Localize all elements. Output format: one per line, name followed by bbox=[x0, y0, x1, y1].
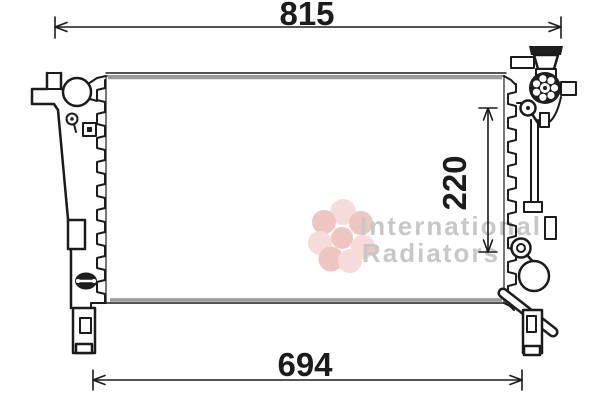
right-side-tab bbox=[561, 82, 576, 95]
keyhole-tail bbox=[74, 124, 76, 132]
keyhole-pin bbox=[70, 117, 74, 121]
upper-bracket-arm bbox=[32, 73, 71, 308]
filler-cap-top bbox=[529, 46, 563, 55]
watermark-line2: Radiators bbox=[362, 238, 500, 268]
dimension-top-width: 815 bbox=[55, 0, 561, 38]
clamp-dot-left bbox=[76, 279, 80, 283]
filler-cap-body bbox=[534, 55, 558, 69]
flower-petal bbox=[312, 210, 336, 234]
left-tank-top-step bbox=[88, 76, 106, 84]
flower-center bbox=[331, 227, 353, 249]
overflow-pipe-foot bbox=[524, 202, 542, 212]
right-keyhole-pin bbox=[526, 106, 530, 110]
right-foot-detail bbox=[527, 316, 536, 332]
dim-bottom-value: 694 bbox=[277, 346, 333, 383]
lower-side-tab bbox=[545, 217, 556, 239]
radiator-technical-drawing: International Radiators bbox=[0, 0, 600, 400]
dim-side-value: 220 bbox=[436, 155, 473, 210]
dim-top-value: 815 bbox=[279, 0, 334, 32]
bracket-tab bbox=[47, 73, 61, 89]
dimension-bottom-width: 694 bbox=[93, 346, 522, 390]
small-tab bbox=[540, 113, 549, 127]
right-tank-top-step bbox=[504, 76, 516, 85]
mid-bracket bbox=[68, 220, 85, 249]
clamp-dot-right bbox=[92, 279, 96, 283]
right-tank-notched-edge bbox=[508, 84, 516, 303]
radiator-pressure-cap-icon bbox=[529, 72, 561, 104]
left-tank-assembly bbox=[32, 73, 106, 353]
square-fastener-pin bbox=[87, 127, 92, 132]
watermark: International Radiators bbox=[308, 199, 542, 273]
outlet-port bbox=[519, 261, 549, 291]
left-foot-cap bbox=[76, 344, 92, 353]
mounting-grommet bbox=[63, 78, 91, 106]
left-foot-detail bbox=[80, 318, 91, 333]
inlet-pipe bbox=[511, 57, 534, 68]
right-tank-assembly bbox=[503, 46, 576, 355]
left-tank-notched-edge bbox=[97, 80, 105, 303]
drawing-canvas: International Radiators bbox=[0, 0, 600, 400]
right-foot-cap bbox=[524, 346, 540, 355]
arm-to-tank-line bbox=[90, 99, 97, 101]
